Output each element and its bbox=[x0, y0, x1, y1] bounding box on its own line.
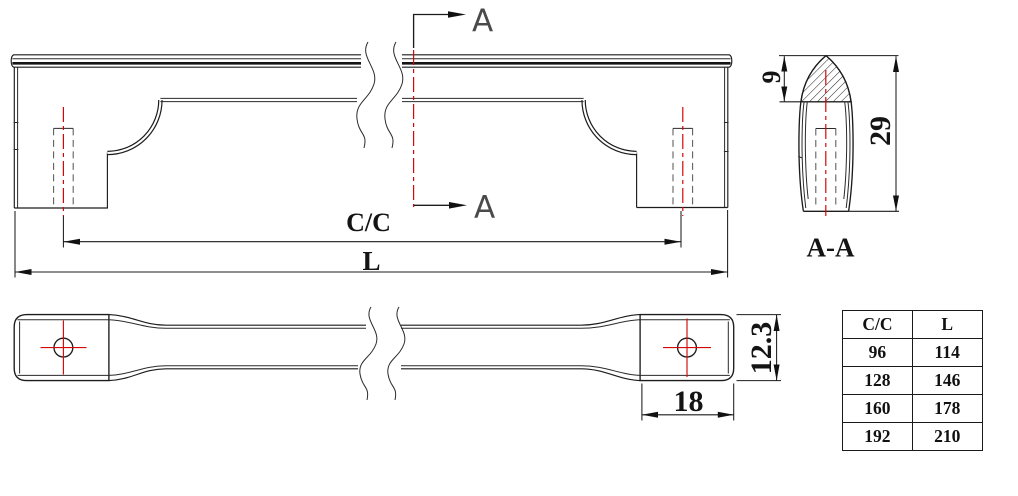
section-arrow-top-icon bbox=[448, 11, 466, 18]
table-cell: 96 bbox=[843, 339, 913, 367]
table-cell: 210 bbox=[912, 423, 982, 451]
break-lines-elevation bbox=[357, 42, 403, 148]
section-arrow-bottom-icon bbox=[449, 202, 467, 209]
plan-bar-outline bbox=[166, 325, 581, 369]
dimension-pad-height: 12.3 bbox=[737, 315, 782, 381]
size-table-header-l: L bbox=[912, 311, 982, 339]
size-table-row: 128 146 bbox=[843, 367, 983, 395]
right-leg-outline bbox=[584, 67, 729, 207]
dim-18-label: 18 bbox=[674, 385, 704, 418]
table-cell: 114 bbox=[912, 339, 982, 367]
elevation-view: A A C/C L bbox=[11, 4, 732, 278]
size-table-row: 160 178 bbox=[843, 395, 983, 423]
dimension-center-to-center: C/C bbox=[63, 208, 681, 248]
table-cell: 160 bbox=[843, 395, 913, 423]
dim-29-label: 29 bbox=[864, 116, 897, 146]
size-table-header-cc: C/C bbox=[843, 311, 913, 339]
dim-9-label: 9 bbox=[757, 71, 786, 84]
right-screw-hole-hidden bbox=[673, 107, 693, 216]
section-cut-line: A A bbox=[414, 4, 496, 227]
table-cell: 146 bbox=[912, 367, 982, 395]
grip-underside-contour bbox=[160, 98, 583, 101]
size-table-row: 192 210 bbox=[843, 423, 983, 451]
handle-technical-drawing: A A C/C L bbox=[0, 0, 1018, 496]
right-screw-hole-plan bbox=[663, 319, 711, 378]
section-view-title: A-A bbox=[807, 233, 855, 263]
plan-view: 18 12.3 bbox=[14, 307, 781, 421]
left-leg-outline bbox=[14, 67, 161, 208]
break-lines-plan bbox=[360, 307, 405, 400]
section-label-bottom: A bbox=[474, 190, 495, 226]
dimension-cap-depth: 9 bbox=[757, 56, 787, 101]
section-aa-view: 9 29 A-A bbox=[757, 56, 899, 263]
size-table-header-row: C/C L bbox=[843, 311, 983, 339]
table-cell: 128 bbox=[843, 367, 913, 395]
left-screw-hole-hidden bbox=[54, 107, 74, 216]
left-taper bbox=[109, 315, 166, 381]
dim-12-3-label: 12.3 bbox=[745, 322, 778, 375]
table-cell: 192 bbox=[843, 423, 913, 451]
section-label-top: A bbox=[472, 4, 493, 40]
size-table: C/C L 96 114 128 146 160 178 192 210 bbox=[842, 310, 983, 451]
size-table-row: 96 114 bbox=[843, 339, 983, 367]
grip-bar-outline bbox=[11, 55, 732, 67]
dim-l-label: L bbox=[362, 246, 380, 276]
left-screw-hole-plan bbox=[41, 321, 87, 375]
dim-cc-label: C/C bbox=[346, 208, 391, 237]
dimension-profile-height: 29 bbox=[864, 56, 899, 211]
right-taper bbox=[581, 315, 640, 381]
dimension-pad-width: 18 bbox=[642, 384, 734, 421]
table-cell: 178 bbox=[912, 395, 982, 423]
